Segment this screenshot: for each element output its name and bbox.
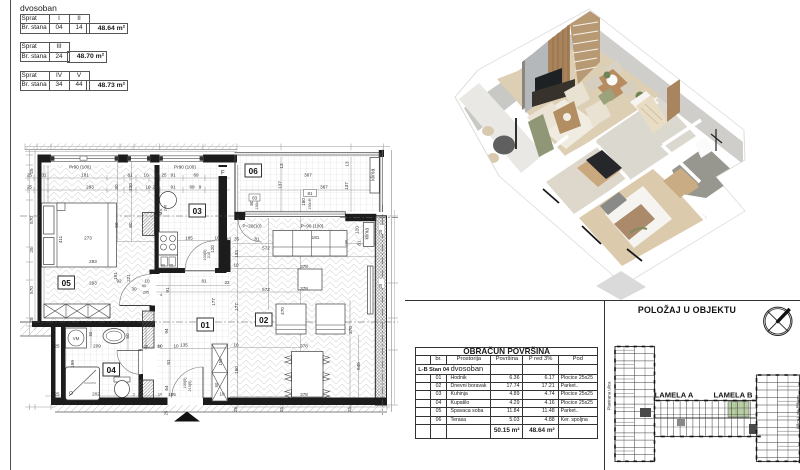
svg-text:25: 25 bbox=[161, 173, 167, 178]
svg-text:202: 202 bbox=[92, 392, 100, 397]
svg-text:25: 25 bbox=[279, 407, 284, 412]
svg-text:10: 10 bbox=[226, 237, 232, 242]
svg-text:91: 91 bbox=[165, 287, 170, 293]
svg-text:02: 02 bbox=[259, 316, 269, 325]
svg-text:293: 293 bbox=[89, 281, 97, 286]
svg-text:10: 10 bbox=[143, 173, 149, 178]
svg-text:60: 60 bbox=[128, 222, 133, 228]
svg-text:P=20(10): P=20(10) bbox=[242, 224, 261, 229]
svg-text:177: 177 bbox=[234, 303, 239, 311]
svg-text:Pr90 (100): Pr90 (100) bbox=[174, 165, 196, 170]
svg-text:60: 60 bbox=[161, 264, 165, 268]
svg-text:25: 25 bbox=[169, 264, 173, 268]
svg-text:25: 25 bbox=[378, 229, 383, 234]
svg-text:94: 94 bbox=[164, 328, 169, 334]
svg-text:572: 572 bbox=[262, 287, 270, 292]
svg-text:10: 10 bbox=[233, 263, 239, 268]
svg-text:30: 30 bbox=[114, 184, 119, 190]
svg-text:572: 572 bbox=[262, 246, 270, 251]
svg-text:20: 20 bbox=[144, 345, 148, 349]
svg-text:91: 91 bbox=[170, 185, 176, 190]
svg-text:Planirana ulica: Planirana ulica bbox=[607, 381, 612, 410]
svg-text:10: 10 bbox=[219, 392, 225, 397]
svg-text:293: 293 bbox=[86, 185, 94, 190]
svg-text:150: 150 bbox=[218, 358, 223, 366]
svg-text:120: 120 bbox=[355, 226, 360, 234]
svg-text:LAMELA B: LAMELA B bbox=[714, 391, 753, 400]
svg-text:205: 205 bbox=[143, 291, 149, 295]
svg-text:160: 160 bbox=[234, 366, 239, 374]
svg-text:P=90 (100): P=90 (100) bbox=[301, 224, 324, 229]
svg-text:9: 9 bbox=[199, 185, 202, 190]
svg-text:90: 90 bbox=[142, 284, 146, 288]
svg-text:137: 137 bbox=[278, 181, 283, 189]
svg-text:klima: klima bbox=[365, 228, 371, 240]
svg-text:25: 25 bbox=[378, 283, 383, 288]
svg-text:klima: klima bbox=[371, 169, 377, 181]
svg-text:25: 25 bbox=[29, 168, 34, 174]
svg-text:378: 378 bbox=[300, 344, 308, 349]
svg-text:10: 10 bbox=[158, 393, 162, 397]
svg-text:25: 25 bbox=[154, 173, 160, 178]
svg-text:13: 13 bbox=[345, 161, 350, 167]
svg-text:4: 4 bbox=[160, 293, 162, 297]
svg-text:22: 22 bbox=[224, 280, 230, 285]
svg-text:81: 81 bbox=[307, 191, 313, 196]
svg-text:246: 246 bbox=[164, 205, 168, 211]
svg-text:91: 91 bbox=[170, 173, 176, 178]
svg-text:81: 81 bbox=[357, 240, 362, 246]
svg-text:60: 60 bbox=[214, 382, 219, 387]
svg-text:Ulica Lole Ribara: Ulica Lole Ribara bbox=[796, 395, 800, 429]
svg-text:210: 210 bbox=[207, 252, 211, 258]
svg-text:64: 64 bbox=[164, 385, 169, 391]
svg-text:199: 199 bbox=[70, 360, 75, 368]
svg-text:LAMELA A: LAMELA A bbox=[655, 391, 694, 400]
svg-text:50: 50 bbox=[114, 222, 119, 228]
svg-text:137: 137 bbox=[344, 182, 349, 190]
svg-text:06: 06 bbox=[249, 167, 259, 176]
svg-text:185: 185 bbox=[168, 392, 176, 397]
svg-text:13: 13 bbox=[279, 163, 284, 169]
svg-text:570: 570 bbox=[29, 286, 34, 294]
svg-text:25: 25 bbox=[347, 407, 352, 412]
svg-text:69: 69 bbox=[189, 185, 195, 190]
svg-text:05: 05 bbox=[62, 279, 72, 288]
svg-text:209: 209 bbox=[93, 344, 101, 349]
svg-text:370: 370 bbox=[348, 326, 353, 334]
svg-text:81: 81 bbox=[166, 359, 171, 365]
svg-text:470: 470 bbox=[280, 307, 285, 315]
svg-text:180: 180 bbox=[301, 198, 306, 206]
svg-text:2: 2 bbox=[133, 393, 135, 397]
svg-text:25: 25 bbox=[138, 393, 142, 397]
svg-text:135: 135 bbox=[180, 343, 188, 348]
svg-text:MS: MS bbox=[158, 209, 163, 216]
svg-text:50: 50 bbox=[125, 333, 130, 339]
svg-text:10: 10 bbox=[233, 343, 239, 348]
svg-text:81: 81 bbox=[201, 279, 207, 284]
svg-text:10: 10 bbox=[214, 236, 220, 241]
svg-text:81: 81 bbox=[127, 173, 133, 178]
svg-text:100: 100 bbox=[345, 240, 349, 246]
svg-text:25: 25 bbox=[152, 185, 158, 190]
svg-text:92: 92 bbox=[116, 279, 122, 284]
svg-text:81: 81 bbox=[254, 237, 260, 242]
svg-text:10: 10 bbox=[144, 279, 150, 284]
svg-text:570: 570 bbox=[29, 216, 34, 224]
svg-text:25: 25 bbox=[54, 392, 60, 397]
svg-text:03: 03 bbox=[193, 207, 203, 216]
svg-text:177: 177 bbox=[211, 298, 216, 306]
svg-text:25: 25 bbox=[54, 344, 60, 349]
svg-text:F: F bbox=[221, 171, 225, 177]
svg-text:378: 378 bbox=[300, 286, 308, 291]
svg-text:10: 10 bbox=[145, 185, 151, 190]
svg-text:10: 10 bbox=[157, 345, 161, 349]
svg-text:185: 185 bbox=[185, 236, 193, 241]
svg-text:120: 120 bbox=[210, 245, 215, 253]
svg-text:378: 378 bbox=[300, 264, 308, 269]
svg-text:367: 367 bbox=[304, 173, 312, 178]
svg-text:210(5): 210(5) bbox=[188, 380, 192, 392]
svg-text:411: 411 bbox=[58, 235, 63, 243]
svg-text:10: 10 bbox=[173, 344, 179, 349]
svg-text:69: 69 bbox=[193, 173, 199, 178]
svg-text:25: 25 bbox=[29, 317, 34, 323]
svg-text:25: 25 bbox=[233, 407, 238, 412]
svg-text:100(5): 100(5) bbox=[183, 377, 187, 389]
svg-text:130: 130 bbox=[128, 183, 133, 191]
svg-text:150=R: 150=R bbox=[308, 198, 312, 210]
svg-text:03: 03 bbox=[252, 195, 258, 200]
svg-text:545: 545 bbox=[356, 362, 361, 370]
svg-text:VM: VM bbox=[73, 336, 80, 341]
svg-text:31: 31 bbox=[41, 173, 47, 178]
svg-text:181: 181 bbox=[312, 235, 320, 240]
svg-text:35: 35 bbox=[234, 237, 240, 242]
svg-text:367: 367 bbox=[320, 185, 328, 190]
svg-text:25: 25 bbox=[29, 247, 34, 253]
svg-text:Pr90 (100): Pr90 (100) bbox=[69, 165, 91, 170]
svg-text:378: 378 bbox=[300, 392, 308, 397]
svg-text:04: 04 bbox=[107, 366, 117, 375]
svg-text:25: 25 bbox=[164, 410, 169, 415]
svg-text:01: 01 bbox=[201, 321, 211, 330]
svg-text:181: 181 bbox=[81, 173, 89, 178]
svg-text:293: 293 bbox=[89, 259, 97, 264]
svg-text:30: 30 bbox=[131, 287, 137, 292]
svg-text:25: 25 bbox=[27, 185, 33, 190]
svg-text:133: 133 bbox=[234, 250, 239, 258]
svg-text:273: 273 bbox=[84, 236, 92, 241]
svg-text:50: 50 bbox=[88, 331, 93, 336]
svg-text:221: 221 bbox=[126, 274, 131, 282]
